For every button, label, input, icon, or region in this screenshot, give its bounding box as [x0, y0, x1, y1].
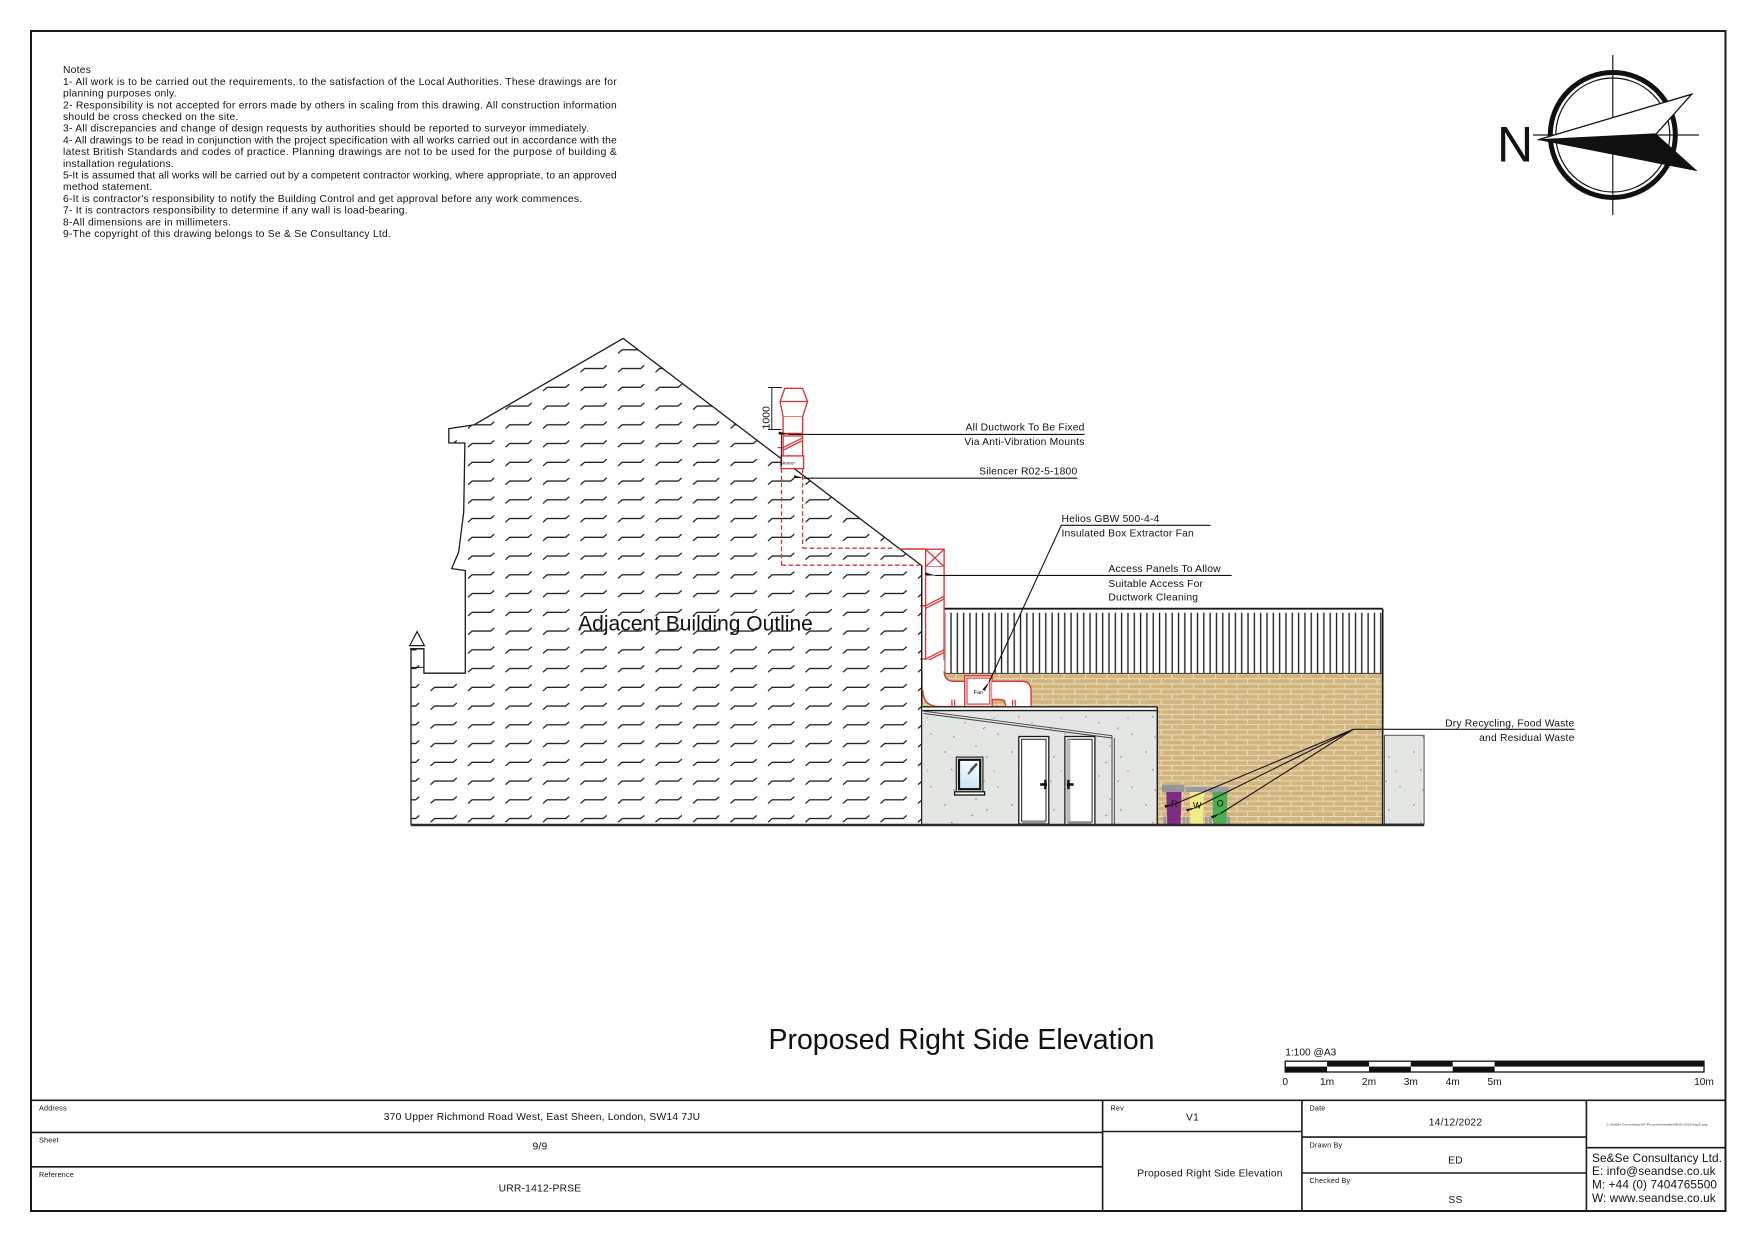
svg-text:M: +44 (0) 7404765500: M: +44 (0) 7404765500 [1592, 1178, 1717, 1192]
svg-text:Silencer: Silencer [780, 461, 796, 466]
svg-text:Insulated Box Extractor Fan: Insulated Box Extractor Fan [1062, 528, 1195, 539]
svg-text:Suitable Access For: Suitable Access For [1108, 579, 1203, 590]
svg-text:Checked By: Checked By [1310, 1176, 1351, 1185]
svg-text:5-It is assumed that all works: 5-It is assumed that all works will be c… [63, 171, 617, 182]
svg-text:14/12/2022: 14/12/2022 [1429, 1118, 1483, 1129]
svg-text:URR-1412-PRSE: URR-1412-PRSE [499, 1184, 582, 1195]
svg-text:Sheet: Sheet [39, 1136, 59, 1145]
svg-text:SS: SS [1448, 1195, 1462, 1206]
svg-text:9/9: 9/9 [533, 1142, 548, 1153]
svg-text:should be cross checked on the: should be cross checked on the site. [63, 112, 239, 123]
svg-text:Drawn By: Drawn By [1310, 1140, 1343, 1149]
svg-text:3- All discrepancies and chang: 3- All discrepancies and change of desig… [63, 124, 589, 135]
svg-text:E: info@seandse.co.uk: E: info@seandse.co.uk [1592, 1164, 1716, 1178]
svg-text:Proposed Right Side Elevation: Proposed Right Side Elevation [769, 1024, 1155, 1056]
svg-text:planning purposes only.: planning purposes only. [63, 89, 177, 100]
svg-text:Rev: Rev [1111, 1104, 1125, 1113]
svg-text:All Ductwork To Be Fixed: All Ductwork To Be Fixed [966, 423, 1085, 434]
svg-text:ED: ED [1448, 1156, 1463, 1167]
svg-text:method statement.: method statement. [63, 182, 153, 193]
svg-text:Date: Date [1310, 1104, 1326, 1113]
svg-text:4- All drawings to be read in: 4- All drawings to be read in conjunctio… [63, 135, 617, 146]
svg-text:Adjacent Building Outline: Adjacent Building Outline [578, 613, 813, 636]
svg-text:Access Panels To Allow: Access Panels To Allow [1108, 564, 1221, 575]
svg-text:1m: 1m [1320, 1077, 1334, 1088]
svg-text:Helios GBW 500-4-4: Helios GBW 500-4-4 [1062, 514, 1160, 525]
svg-text:10m: 10m [1694, 1077, 1714, 1088]
svg-text:W: www.seandse.co.uk: W: www.seandse.co.uk [1592, 1191, 1716, 1205]
svg-text:1000: 1000 [761, 406, 773, 430]
svg-text:N: N [1497, 117, 1533, 173]
svg-text:5m: 5m [1488, 1077, 1502, 1088]
svg-text:1:100 @A3: 1:100 @A3 [1285, 1048, 1336, 1059]
svg-text:1- All work is to be carried o: 1- All work is to be carried out the req… [63, 77, 617, 88]
svg-text:4m: 4m [1446, 1077, 1460, 1088]
svg-text:3m: 3m [1404, 1077, 1418, 1088]
svg-text:O: O [1217, 799, 1224, 809]
svg-text:Silencer R02-5-1800: Silencer R02-5-1800 [979, 466, 1077, 477]
svg-text:370 Upper Richmond Road West,: 370 Upper Richmond Road West, East Sheen… [384, 1112, 700, 1123]
svg-text:C:\Se&Se Consultancy\07-Pictur: C:\Se&Se Consultancy\07-Pictures\seandse… [1606, 1123, 1707, 1127]
svg-text:0: 0 [1282, 1077, 1288, 1088]
svg-text:Reference: Reference [39, 1170, 74, 1179]
svg-text:2m: 2m [1362, 1077, 1376, 1088]
svg-text:8-All dimensions are in millim: 8-All dimensions are in millimeters. [63, 217, 231, 228]
svg-text:Dry Recycling, Food Waste: Dry Recycling, Food Waste [1445, 718, 1574, 729]
svg-text:and Residual Waste: and Residual Waste [1479, 733, 1574, 744]
svg-text:Notes: Notes [63, 65, 91, 76]
svg-text:Proposed Right Side Elevation: Proposed Right Side Elevation [1137, 1169, 1283, 1180]
svg-text:installation regulations.: installation regulations. [63, 159, 174, 170]
svg-text:2- Responsibility is not accep: 2- Responsibility is not accepted for er… [63, 100, 617, 111]
svg-text:V1: V1 [1186, 1113, 1199, 1124]
svg-text:latest British Standards and c: latest British Standards and codes of pr… [63, 147, 617, 158]
svg-text:Ductwork Cleaning: Ductwork Cleaning [1108, 593, 1198, 604]
svg-text:7- It is contractors responsib: 7- It is contractors responsibility to d… [63, 206, 408, 217]
svg-text:Se&Se Consultancy Ltd.: Se&Se Consultancy Ltd. [1592, 1151, 1722, 1165]
svg-text:Via Anti-Vibration Mounts: Via Anti-Vibration Mounts [964, 437, 1084, 448]
svg-text:6-It is contractor's responsib: 6-It is contractor's responsibility to n… [63, 194, 582, 205]
svg-text:9-The copyright of this drawin: 9-The copyright of this drawing belongs … [63, 229, 391, 240]
svg-text:Address: Address [39, 1104, 67, 1113]
svg-text:Fan: Fan [974, 690, 983, 696]
